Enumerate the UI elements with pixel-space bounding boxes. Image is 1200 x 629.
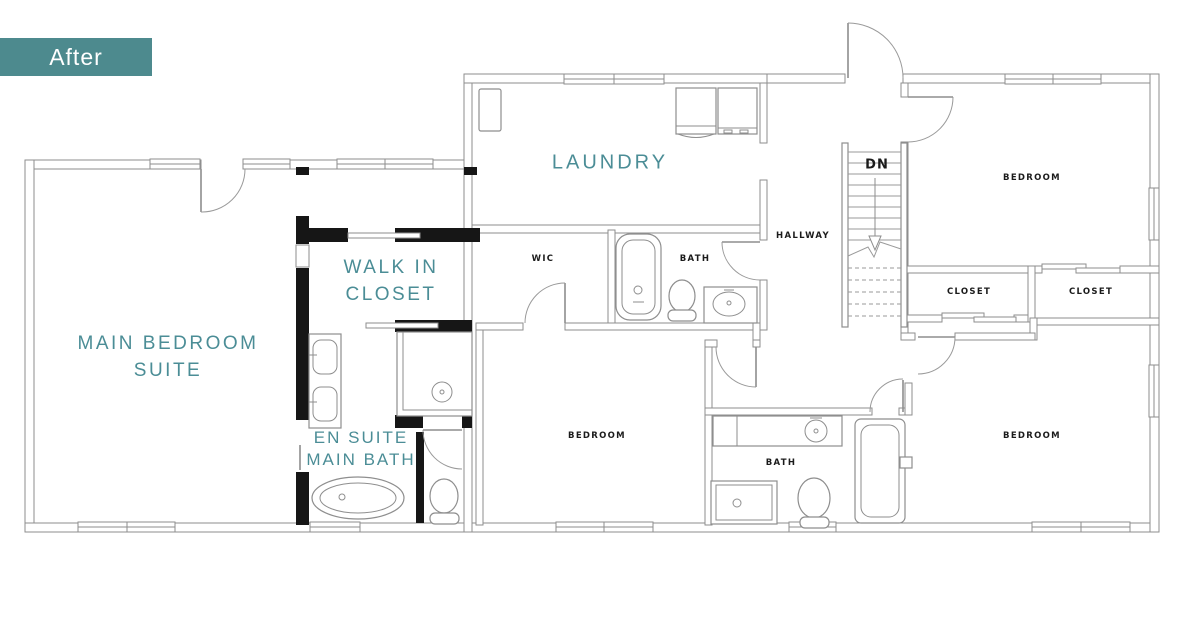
window — [1149, 365, 1159, 417]
freestanding-tub — [312, 477, 404, 519]
vanity-top-bath — [704, 287, 757, 323]
window — [310, 522, 360, 532]
cased-opening-wic — [296, 245, 309, 267]
dryer — [718, 88, 757, 134]
door-bath-bottom — [870, 379, 903, 412]
toilet-bottom-bath — [798, 478, 830, 528]
room-label-ensuite-main-bath: EN SUITE MAIN BATH — [306, 427, 415, 471]
walk-in-shower-ensuite — [397, 332, 472, 416]
door-bedroom-bottom-right — [918, 337, 955, 374]
door-wic — [525, 283, 565, 323]
stair-direction-arrow — [869, 178, 881, 250]
toilet-ensuite — [430, 479, 459, 524]
door-bedroom-top-right — [908, 97, 953, 142]
room-label-bath-bottom: BATH — [766, 458, 797, 468]
window — [1005, 74, 1101, 84]
window — [78, 522, 175, 532]
window — [150, 159, 200, 169]
shower-bottom-bath — [711, 481, 777, 524]
tall-cabinet — [479, 89, 501, 131]
room-label-bath-top: BATH — [680, 254, 711, 264]
floor-plan-drawing — [0, 0, 1200, 629]
room-label-bedroom-bottom-right: BEDROOM — [1003, 431, 1061, 441]
pocket-door-wic-top — [348, 233, 420, 238]
room-label-walk-in-closet: WALK IN CLOSET — [344, 254, 439, 308]
window — [556, 522, 653, 532]
sliding-door-closet-left-2 — [974, 317, 1016, 322]
door-ensuite-wc — [423, 430, 462, 469]
room-label-laundry: LAUNDRY — [552, 150, 668, 177]
bathtub-bottom-bath — [855, 419, 912, 523]
floor-plan-page: After MAIN BEDROOM SUITE WALK IN CLOSET … — [0, 0, 1200, 629]
door-bedroom-bottom-middle — [716, 347, 756, 387]
bathtub-top-bath — [616, 234, 661, 320]
room-label-hallway: HALLWAY — [776, 231, 830, 241]
room-label-bedroom-top-right: BEDROOM — [1003, 173, 1061, 183]
room-label-bedroom-bottom-middle: BEDROOM — [568, 431, 626, 441]
after-badge: After — [0, 38, 152, 76]
vanity-bottom-bath — [713, 416, 842, 446]
room-label-closet-right: CLOSET — [1069, 287, 1113, 297]
sliding-door-closet-right-2 — [1076, 268, 1120, 273]
window — [564, 74, 664, 84]
window — [337, 159, 433, 169]
existing-walls — [25, 74, 1159, 532]
room-label-main-bedroom-suite: MAIN BEDROOM SUITE — [78, 330, 259, 384]
room-label-closet-left: CLOSET — [947, 287, 991, 297]
stair-label-dn: DN — [865, 158, 889, 173]
double-vanity-ensuite — [309, 334, 341, 428]
room-label-wic: WIC — [532, 254, 555, 264]
after-badge-label: After — [49, 44, 103, 71]
pocket-door-wic-bottom — [366, 323, 438, 328]
door-bath-top — [722, 242, 760, 280]
door-exterior-stair-landing — [848, 23, 903, 78]
window — [1032, 522, 1130, 532]
window — [243, 159, 290, 169]
washer — [676, 88, 716, 138]
toilet-top-bath — [668, 280, 696, 321]
window — [1149, 188, 1159, 240]
door-main-suite — [201, 169, 245, 212]
